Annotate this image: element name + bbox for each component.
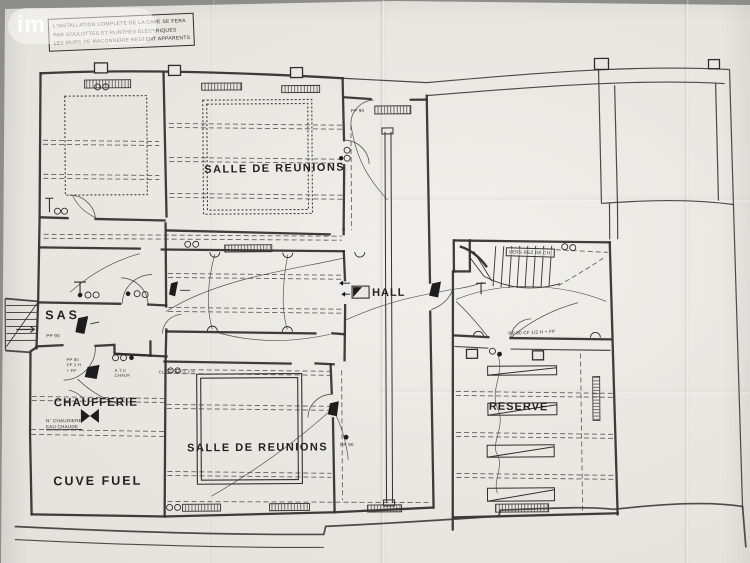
room-label-reserve: RESERVE [489, 401, 549, 415]
room-label-sas: SAS [45, 308, 80, 324]
watermark-logo: im [17, 11, 46, 38]
annotation-pp90-sas: PP 90 [46, 333, 59, 339]
room-label-chaufferie: CHAUFFERIE [54, 396, 138, 411]
annotation-pp90-corridor: PP 90 [351, 108, 364, 114]
room-label-cuve-fuel: CUVE FUEL [53, 474, 142, 490]
floor-plan-drawing: SALLE DE REUNIONS SALLE DE REUNIONS SAS … [0, 0, 750, 563]
annotation-vers-rez-de-ch: VERS REZ DE CH. [506, 247, 555, 257]
annotation-pp80-chaufferie: PP 80 CF 1 H + FP [67, 357, 82, 373]
annotation-chaudiere: N° CHAUDIERE EAU CHAUDE [46, 418, 82, 431]
annotation-atu-chauf: A.T.U CHAUF. [115, 368, 131, 379]
annotation-cloison: CLOISON CF 2 H [159, 369, 195, 375]
room-label-salle-reunions-top: SALLE DE REUNIONS [204, 161, 345, 177]
photo-of-floor-plan: SALLE DE REUNIONS SALLE DE REUNIONS SAS … [0, 0, 750, 563]
room-label-salle-reunions-bottom: SALLE DE REUNIONS [187, 441, 328, 456]
room-label-hall: HALL [372, 287, 405, 301]
annotation-pp90-salle: PP 90 [340, 442, 353, 448]
